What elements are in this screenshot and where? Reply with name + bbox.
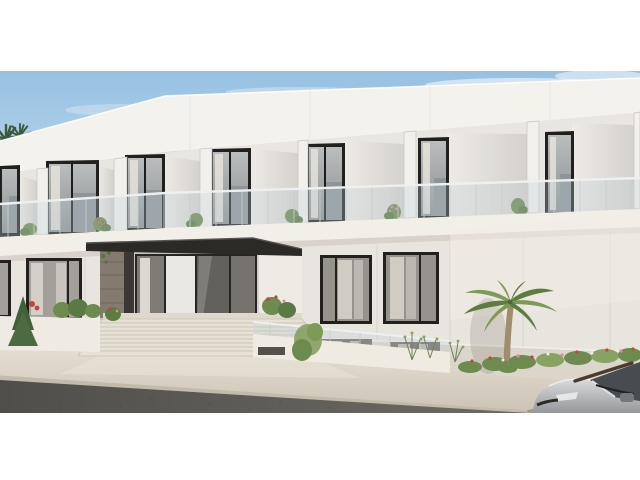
stair-step — [100, 319, 305, 323]
entry-door — [166, 256, 195, 317]
window — [320, 255, 372, 324]
shrub — [278, 302, 296, 318]
flowers — [35, 306, 40, 311]
curtain — [354, 260, 363, 319]
letterbox-bottom — [0, 413, 640, 480]
flowers — [283, 300, 286, 303]
photo-frame — [0, 0, 640, 480]
flowers — [108, 307, 111, 310]
shrub — [68, 299, 88, 317]
curtain — [140, 258, 150, 314]
flowers — [274, 295, 277, 298]
letterbox-top — [0, 0, 640, 71]
flowers — [29, 301, 35, 307]
flowers — [116, 310, 119, 313]
shrub — [105, 307, 121, 321]
shrub — [85, 304, 101, 318]
side-mirror — [620, 393, 634, 402]
window — [383, 252, 439, 324]
window — [0, 260, 11, 318]
ramp-recess — [258, 347, 285, 355]
palm-crown — [508, 300, 513, 305]
flowers — [266, 297, 270, 301]
entry-glass-doors — [135, 254, 257, 319]
entry-door — [231, 256, 255, 317]
curtain — [338, 260, 352, 319]
scene-canvas — [0, 0, 640, 480]
curtain — [390, 257, 404, 319]
entry-fin — [124, 252, 134, 318]
curtain — [406, 257, 416, 319]
